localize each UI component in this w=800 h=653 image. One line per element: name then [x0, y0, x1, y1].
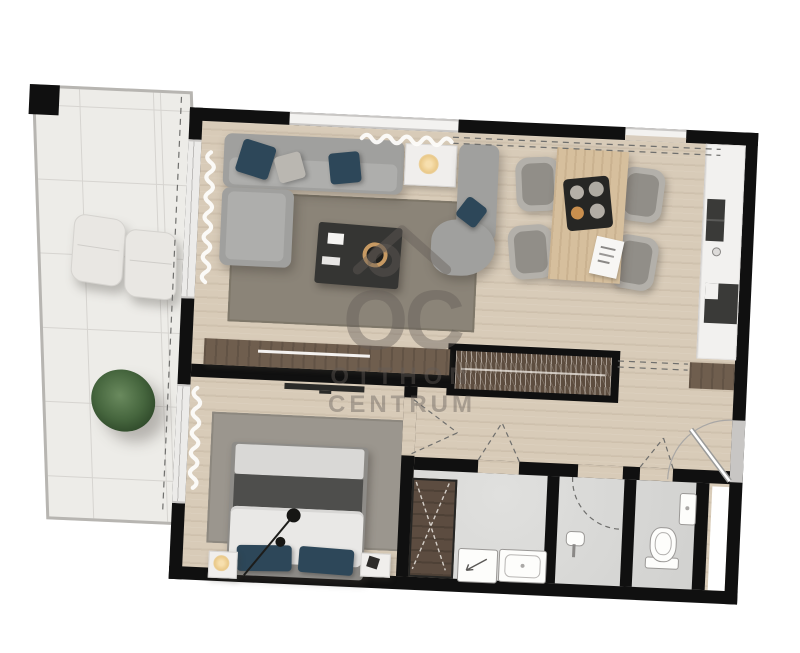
pendant-lamp-icon [244, 506, 301, 577]
dashed-guide-lines [163, 97, 722, 537]
washer-arrow-icon [466, 558, 487, 571]
entry-door-icon [668, 417, 733, 482]
door-swing-icons [409, 400, 676, 532]
curtain-icons [189, 128, 452, 499]
plan-line-art [7, 82, 763, 611]
floorplan [7, 82, 763, 611]
floorplan-image: OC OTTHON CENTRUM [0, 0, 800, 653]
cabinet-cross-icon [412, 482, 449, 570]
